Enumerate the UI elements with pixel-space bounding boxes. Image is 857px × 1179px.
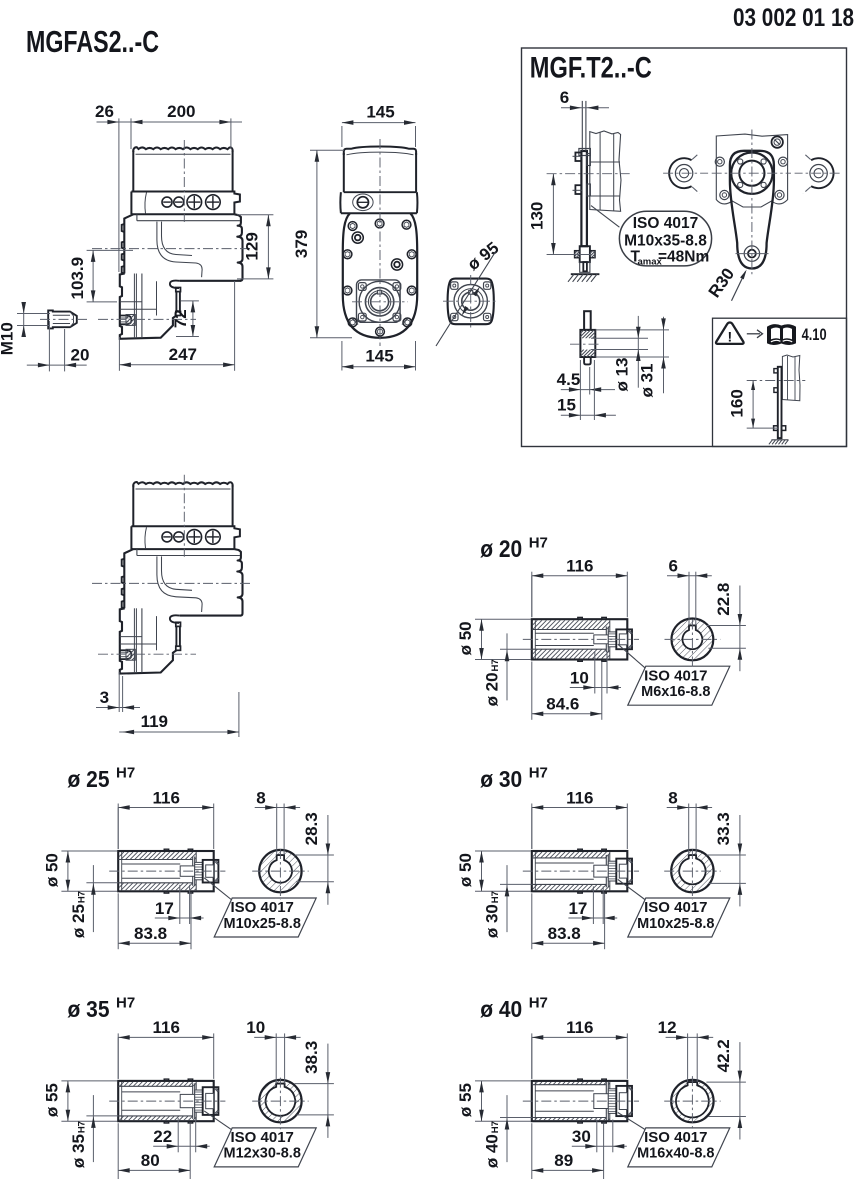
svg-text:ø 20: ø 20 [483, 672, 502, 706]
svg-text:H7: H7 [490, 891, 501, 903]
svg-text:116: 116 [566, 788, 593, 807]
svg-text:3: 3 [100, 688, 109, 707]
svg-text:M12x30-8.8: M12x30-8.8 [224, 1146, 301, 1162]
svg-text:6: 6 [560, 88, 569, 107]
svg-text:22: 22 [153, 1127, 172, 1146]
svg-text:ø 13: ø 13 [613, 357, 632, 391]
svg-text:116: 116 [152, 1018, 179, 1037]
svg-text:15: 15 [557, 396, 576, 415]
svg-text:ø 25: ø 25 [69, 904, 88, 938]
svg-text:116: 116 [566, 557, 593, 576]
svg-text:ø 25: ø 25 [68, 766, 110, 792]
svg-text:10: 10 [246, 1018, 265, 1037]
svg-text:H7: H7 [77, 891, 88, 903]
svg-text:M6x16-8.8: M6x16-8.8 [641, 684, 710, 700]
svg-text:20: 20 [71, 345, 90, 364]
svg-text:ISO 4017: ISO 4017 [633, 215, 699, 232]
svg-text:84.6: 84.6 [546, 695, 579, 714]
svg-text:M10: M10 [0, 322, 17, 355]
svg-text:145: 145 [366, 103, 394, 122]
svg-text:42.2: 42.2 [714, 1039, 733, 1072]
svg-text:30: 30 [572, 1127, 591, 1146]
svg-text:28.3: 28.3 [302, 812, 321, 845]
svg-text:MGF.T2..-C: MGF.T2..-C [530, 51, 652, 84]
svg-text:03 002 01 18: 03 002 01 18 [733, 4, 854, 32]
svg-text:H7: H7 [116, 765, 135, 782]
svg-text:ø 40: ø 40 [480, 996, 522, 1022]
svg-text:ø 35: ø 35 [69, 1134, 88, 1168]
svg-text:H7: H7 [490, 659, 501, 671]
svg-text:ø 31: ø 31 [638, 363, 657, 397]
svg-text:ø 40: ø 40 [483, 1134, 502, 1168]
svg-text:M10x25-8.8: M10x25-8.8 [224, 916, 301, 932]
svg-text:=48Nm: =48Nm [658, 249, 709, 266]
svg-text:379: 379 [292, 230, 311, 258]
svg-text:ø 50: ø 50 [456, 853, 475, 887]
svg-text:8: 8 [668, 788, 677, 807]
svg-text:83.8: 83.8 [548, 924, 581, 943]
svg-text:200: 200 [167, 102, 195, 121]
svg-text:!: ! [727, 329, 732, 345]
svg-text:116: 116 [566, 1018, 593, 1037]
svg-text:ø 55: ø 55 [42, 1083, 61, 1117]
svg-text:ISO 4017: ISO 4017 [644, 1129, 707, 1146]
svg-text:MGFAS2..-C: MGFAS2..-C [26, 24, 159, 59]
svg-text:ø 30: ø 30 [480, 766, 522, 792]
svg-text:130: 130 [528, 202, 547, 230]
svg-text:103.9: 103.9 [68, 257, 87, 300]
svg-text:M16x40-8.8: M16x40-8.8 [637, 1146, 714, 1162]
svg-text:8: 8 [256, 788, 265, 807]
svg-text:247: 247 [169, 345, 197, 364]
svg-text:4.10: 4.10 [802, 326, 827, 344]
svg-text:4.5: 4.5 [557, 370, 581, 389]
svg-text:ISO 4017: ISO 4017 [231, 1129, 294, 1146]
svg-text:119: 119 [141, 712, 168, 731]
svg-text:H7: H7 [116, 995, 135, 1012]
svg-text:33.3: 33.3 [714, 812, 733, 845]
svg-text:H7: H7 [77, 1121, 88, 1133]
svg-text:H7: H7 [529, 535, 548, 552]
svg-text:ø 55: ø 55 [456, 1083, 475, 1117]
svg-text:26: 26 [95, 102, 114, 121]
svg-text:H7: H7 [529, 995, 548, 1012]
svg-text:145: 145 [365, 347, 393, 366]
svg-text:10: 10 [570, 668, 589, 687]
svg-text:22.8: 22.8 [714, 583, 733, 616]
svg-text:129: 129 [243, 232, 262, 260]
svg-text:ISO 4017: ISO 4017 [231, 899, 294, 916]
svg-text:ø 20: ø 20 [480, 536, 522, 563]
svg-text:12: 12 [658, 1018, 677, 1037]
svg-text:6: 6 [669, 557, 678, 576]
svg-text:ø 30: ø 30 [483, 904, 502, 938]
svg-text:ISO 4017: ISO 4017 [644, 899, 707, 916]
svg-text:M10x25-8.8: M10x25-8.8 [637, 916, 714, 932]
svg-text:17: 17 [155, 899, 174, 918]
svg-text:80: 80 [141, 1151, 160, 1170]
svg-text:160: 160 [728, 389, 747, 417]
svg-text:ISO 4017: ISO 4017 [644, 667, 707, 684]
svg-text:M10x35-8.8: M10x35-8.8 [624, 233, 707, 250]
svg-text:ø 50: ø 50 [456, 621, 475, 655]
svg-text:116: 116 [152, 788, 179, 807]
svg-text:ø 35: ø 35 [68, 996, 110, 1022]
svg-text:ø 50: ø 50 [42, 853, 61, 887]
svg-text:83.8: 83.8 [134, 924, 167, 943]
svg-text:17: 17 [568, 899, 587, 918]
svg-text:H7: H7 [490, 1121, 501, 1133]
svg-text:H7: H7 [529, 765, 548, 782]
svg-text:38.3: 38.3 [302, 1041, 321, 1074]
svg-text:72: 72 [171, 309, 190, 328]
svg-text:89: 89 [554, 1151, 573, 1170]
